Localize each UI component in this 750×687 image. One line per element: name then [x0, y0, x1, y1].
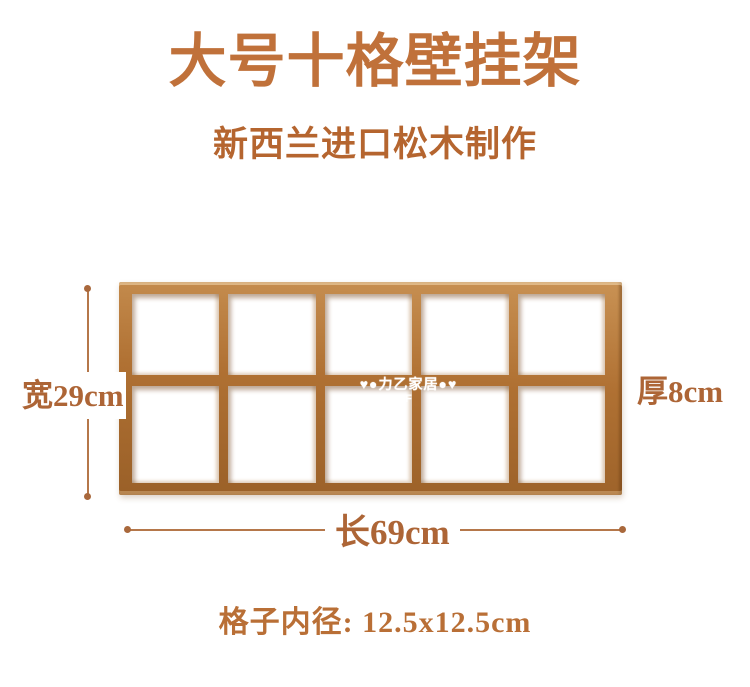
- thickness-label: 厚8cm: [637, 376, 723, 407]
- product-detail-image: 大号十格壁挂架 新西兰进口松木制作 ♥●力乙家居●♥ F 宽29cm 厚8cm …: [0, 0, 750, 687]
- shelf-cell: [325, 294, 412, 375]
- width-label: 宽29cm: [20, 372, 126, 419]
- dimension-endpoint-dot: [124, 526, 131, 533]
- cell-inner-size-label: 格子内径: 12.5x12.5cm: [0, 597, 750, 641]
- dimension-endpoint-dot: [84, 493, 91, 500]
- dimension-endpoint-dot: [619, 526, 626, 533]
- shelf-cell: [518, 294, 605, 375]
- shelf-cell: [132, 386, 219, 483]
- shelf-cell: [132, 294, 219, 375]
- shelf-cell: [228, 294, 315, 375]
- watermark-sub: F: [346, 394, 471, 405]
- page-title: 大号十格壁挂架: [0, 24, 750, 99]
- shelf-cell: [518, 386, 605, 483]
- page-subtitle: 新西兰进口松木制作: [0, 124, 750, 166]
- dimension-endpoint-dot: [84, 285, 91, 292]
- length-label: 长69cm: [325, 513, 460, 552]
- shelf-cell: [421, 294, 508, 375]
- watermark: ♥●力乙家居●♥: [346, 377, 471, 391]
- shelf-cell: [228, 386, 315, 483]
